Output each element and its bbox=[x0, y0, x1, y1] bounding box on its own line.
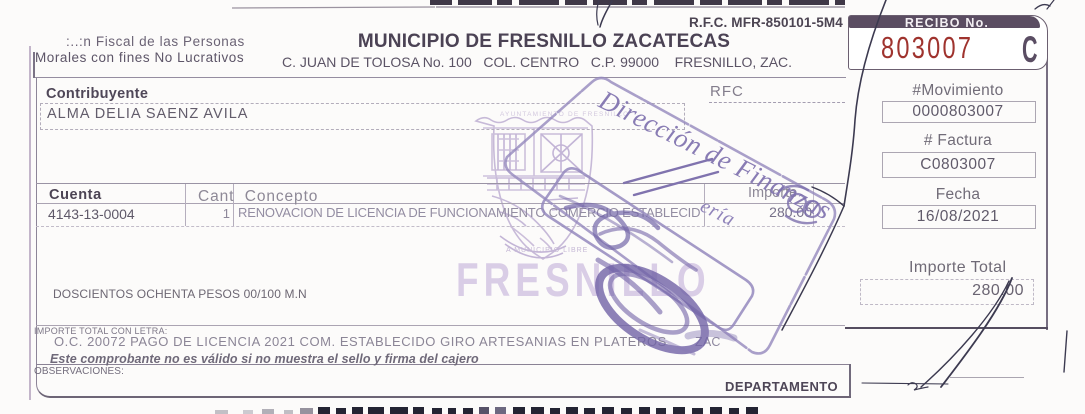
svg-text:ería: ería bbox=[697, 195, 739, 231]
